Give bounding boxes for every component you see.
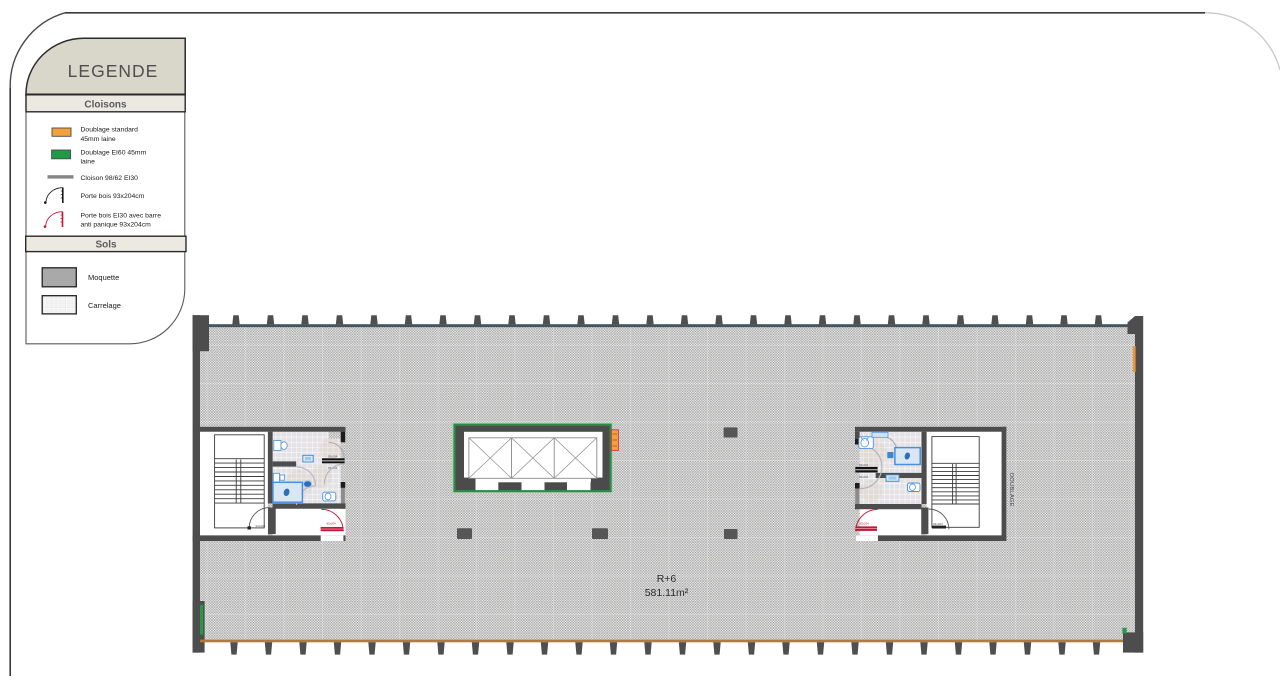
svg-text:laine: laine — [81, 159, 96, 166]
svg-text:anti panique 93x204cm: anti panique 93x204cm — [81, 222, 152, 229]
svg-text:93x204: 93x204 — [256, 524, 266, 528]
svg-text:45mm laine: 45mm laine — [81, 136, 116, 143]
svg-text:93x204: 93x204 — [859, 463, 869, 467]
svg-text:93x204: 93x204 — [860, 522, 870, 526]
svg-text:Cloison 98/62 EI30: Cloison 98/62 EI30 — [81, 175, 139, 182]
svg-text:Carrelage: Carrelage — [88, 301, 121, 310]
svg-text:93x204: 93x204 — [933, 522, 943, 526]
svg-text:Cloisons: Cloisons — [84, 100, 127, 111]
svg-text:Moquette: Moquette — [88, 273, 119, 282]
svg-text:LEGENDE: LEGENDE — [68, 61, 159, 81]
svg-text:Doublage EI60 45mm: Doublage EI60 45mm — [81, 149, 147, 156]
svg-text:Porte bois EI30 avec barre: Porte bois EI30 avec barre — [81, 212, 162, 219]
svg-text:93x204: 93x204 — [327, 522, 337, 526]
svg-text:Porte bois 93x204cm: Porte bois 93x204cm — [81, 193, 145, 200]
svg-text:Sols: Sols — [95, 240, 117, 251]
svg-text:93x204: 93x204 — [328, 454, 338, 458]
svg-text:R+6: R+6 — [657, 573, 677, 585]
svg-text:93x204: 93x204 — [859, 475, 869, 479]
svg-text:581.11m²: 581.11m² — [645, 587, 689, 599]
svg-text:DOUBLAGE: DOUBLAGE — [1008, 473, 1014, 507]
svg-text:Doublage standard: Doublage standard — [81, 127, 139, 134]
